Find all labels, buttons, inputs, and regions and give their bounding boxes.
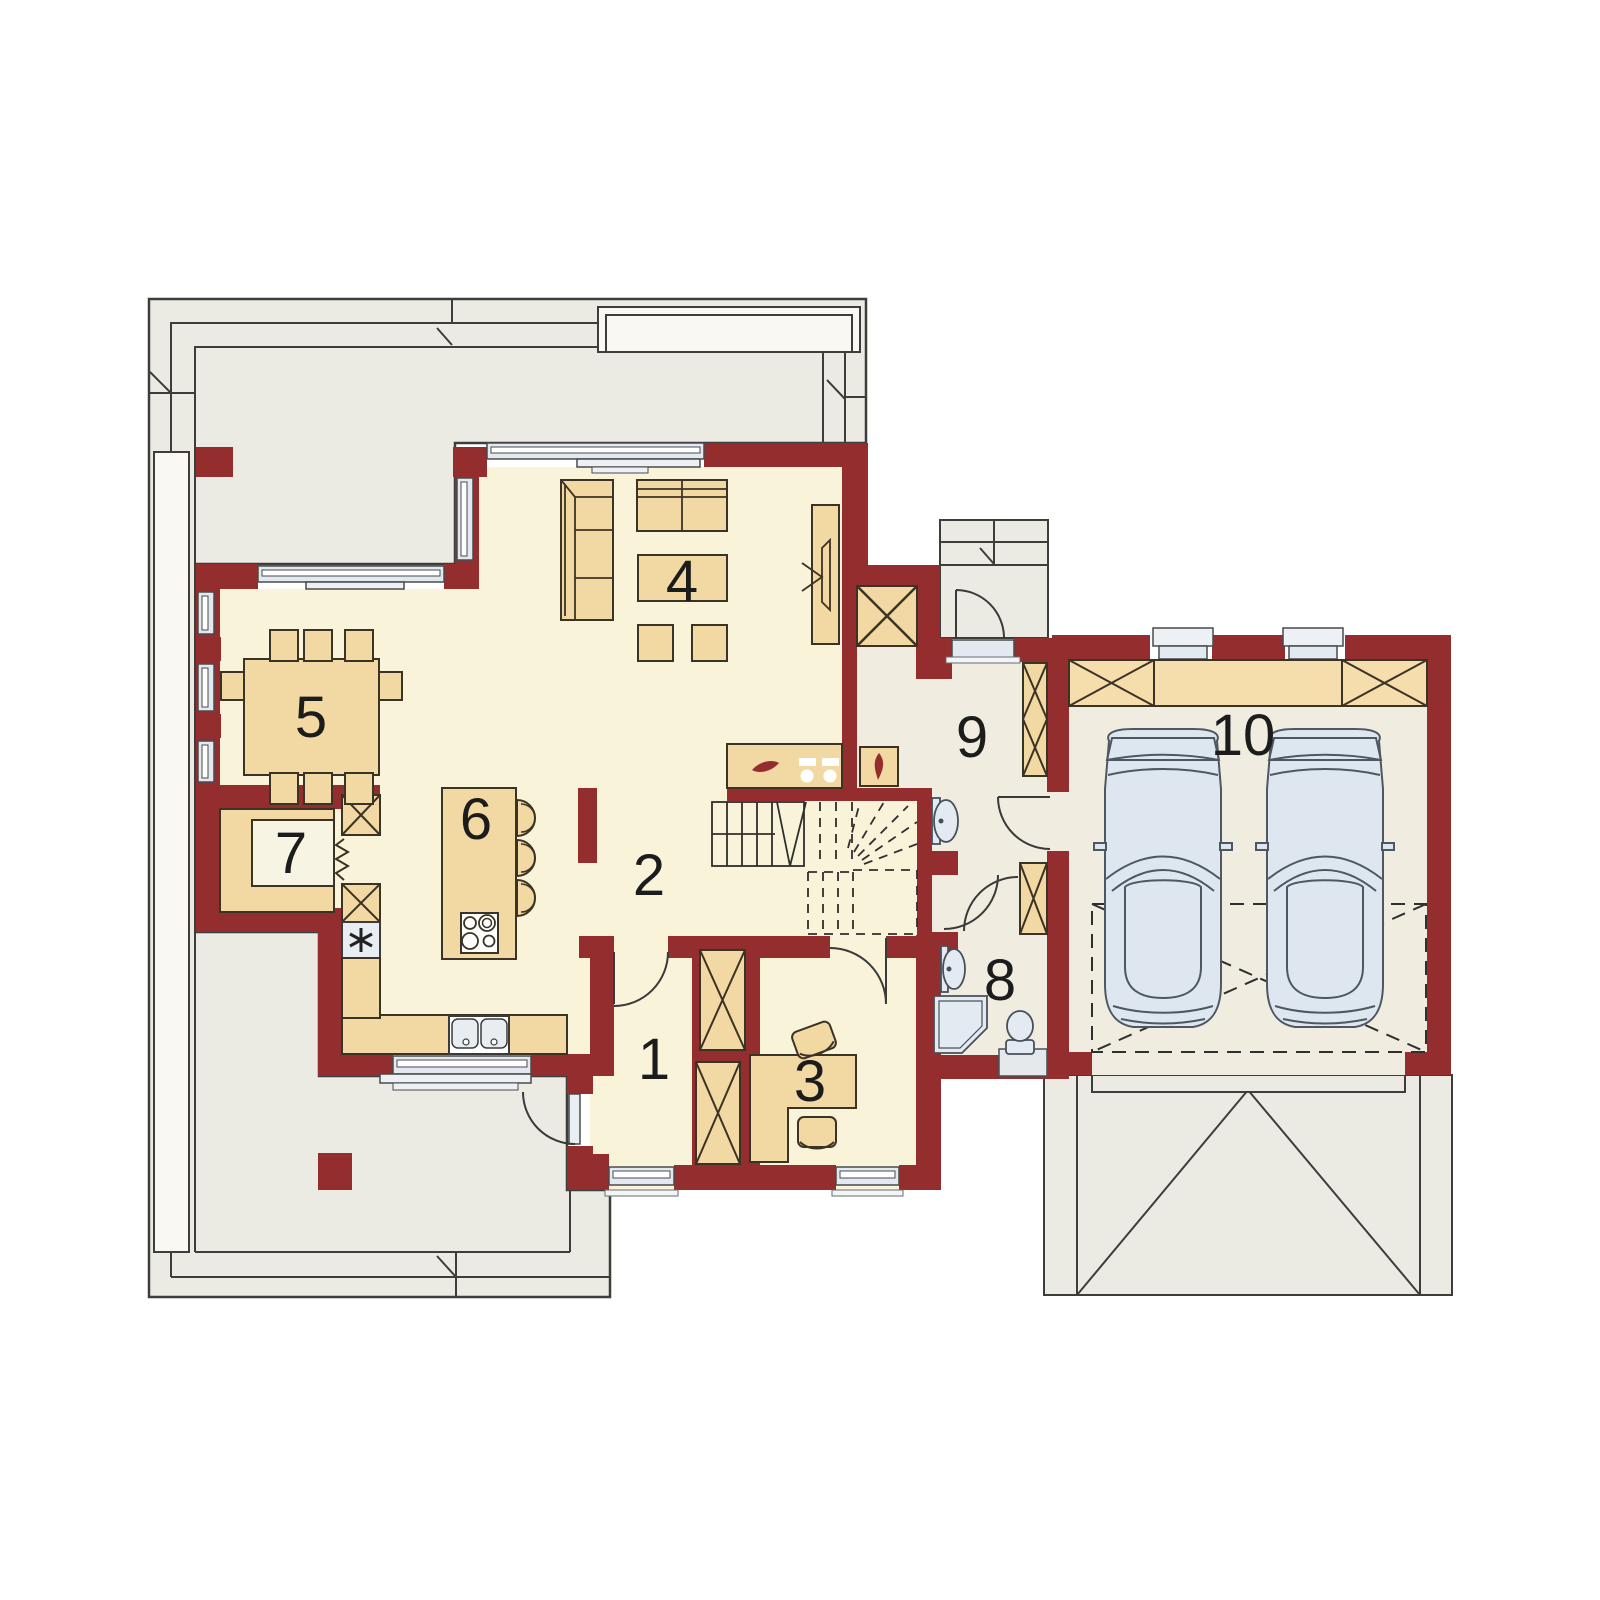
- svg-text:4: 4: [666, 549, 698, 614]
- svg-text:10: 10: [1211, 703, 1276, 768]
- svg-text:5: 5: [295, 685, 327, 750]
- svg-text:9: 9: [956, 705, 988, 770]
- svg-text:3: 3: [794, 1049, 826, 1114]
- svg-text:8: 8: [984, 948, 1016, 1013]
- svg-text:7: 7: [275, 821, 307, 886]
- svg-text:2: 2: [633, 843, 665, 908]
- svg-text:1: 1: [638, 1027, 670, 1092]
- svg-text:6: 6: [460, 787, 492, 852]
